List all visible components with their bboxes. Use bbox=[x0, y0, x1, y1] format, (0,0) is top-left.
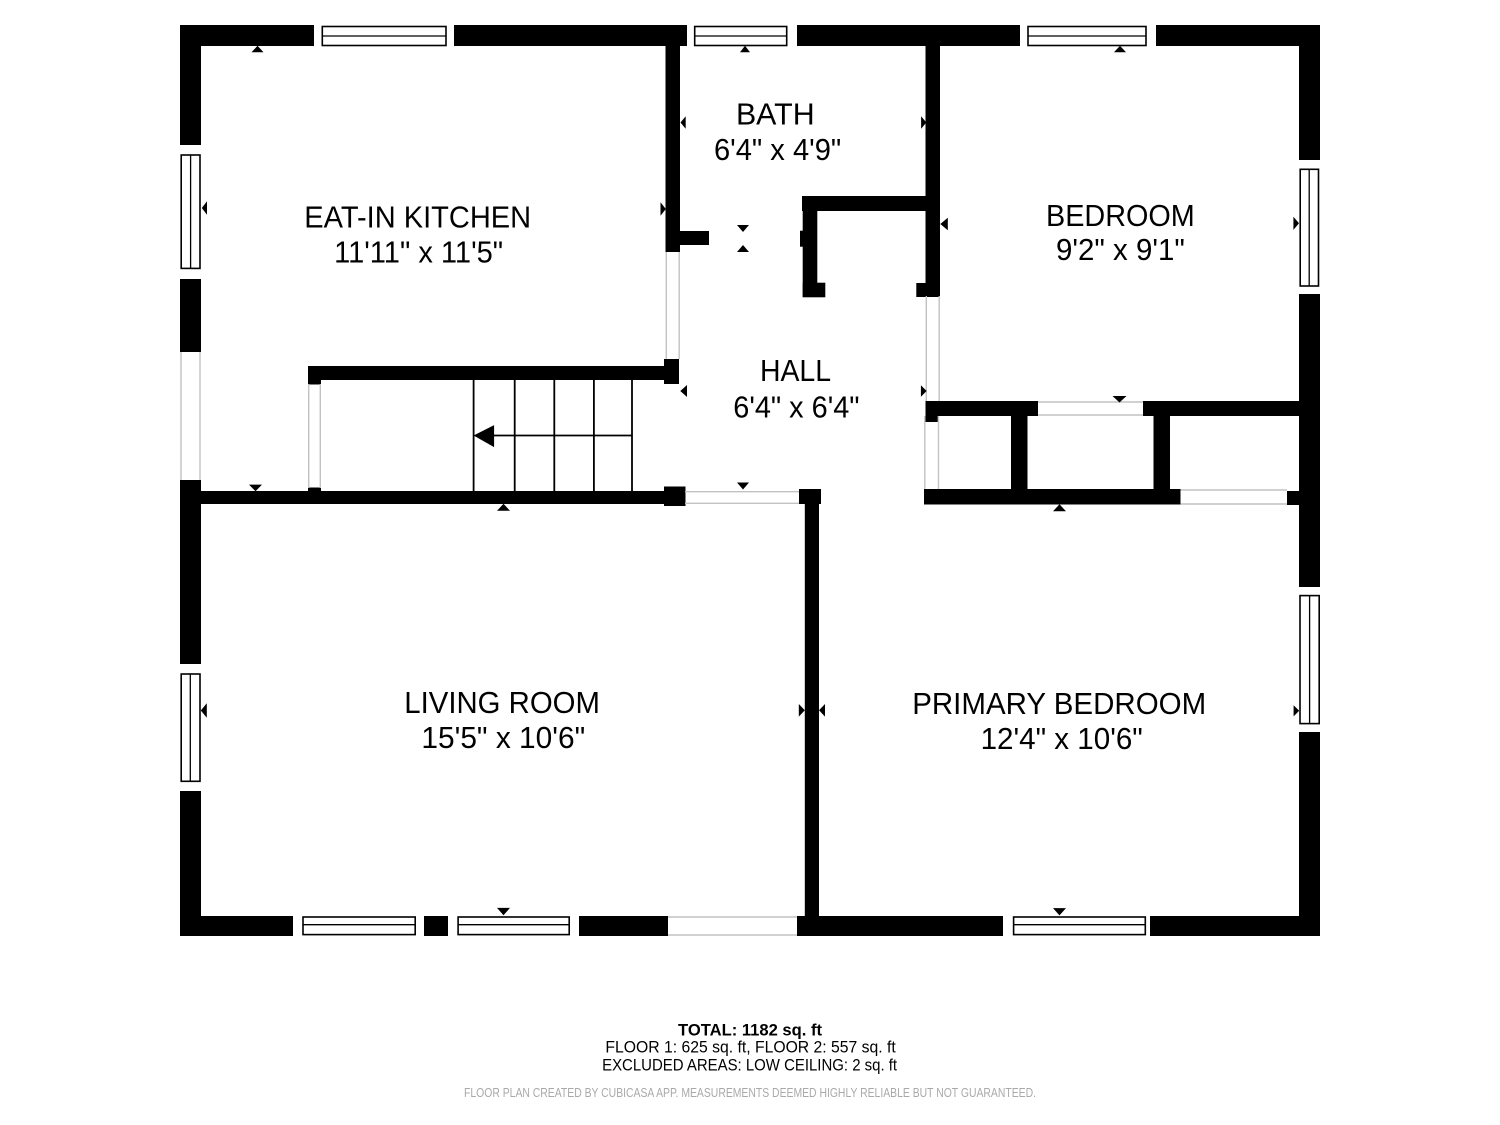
svg-text:HALL: HALL bbox=[760, 353, 831, 388]
svg-text:FLOOR 1: 625 sq. ft, FLOOR 2:: FLOOR 1: 625 sq. ft, FLOOR 2: 557 sq. ft bbox=[605, 1039, 896, 1057]
svg-text:9'2" x 9'1": 9'2" x 9'1" bbox=[1056, 232, 1185, 267]
svg-text:15'5" x 10'6": 15'5" x 10'6" bbox=[421, 720, 585, 755]
svg-text:12'4" x 10'6": 12'4" x 10'6" bbox=[981, 721, 1143, 756]
svg-text:EAT-IN KITCHEN: EAT-IN KITCHEN bbox=[304, 200, 531, 235]
svg-text:EXCLUDED AREAS: LOW CEILING: 2: EXCLUDED AREAS: LOW CEILING: 2 sq. ft bbox=[602, 1056, 897, 1074]
svg-text:BATH: BATH bbox=[736, 97, 815, 132]
svg-text:6'4" x 4'9": 6'4" x 4'9" bbox=[714, 132, 841, 167]
svg-text:BEDROOM: BEDROOM bbox=[1046, 198, 1195, 233]
svg-text:6'4" x 6'4": 6'4" x 6'4" bbox=[733, 390, 859, 425]
svg-text:FLOOR PLAN CREATED BY CUBICASA: FLOOR PLAN CREATED BY CUBICASA APP. MEAS… bbox=[464, 1085, 1036, 1100]
svg-text:11'11" x 11'5": 11'11" x 11'5" bbox=[334, 235, 503, 270]
svg-text:LIVING ROOM: LIVING ROOM bbox=[404, 685, 600, 720]
svg-text:PRIMARY BEDROOM: PRIMARY BEDROOM bbox=[912, 686, 1206, 721]
svg-text:TOTAL: 1182 sq. ft: TOTAL: 1182 sq. ft bbox=[678, 1020, 822, 1039]
